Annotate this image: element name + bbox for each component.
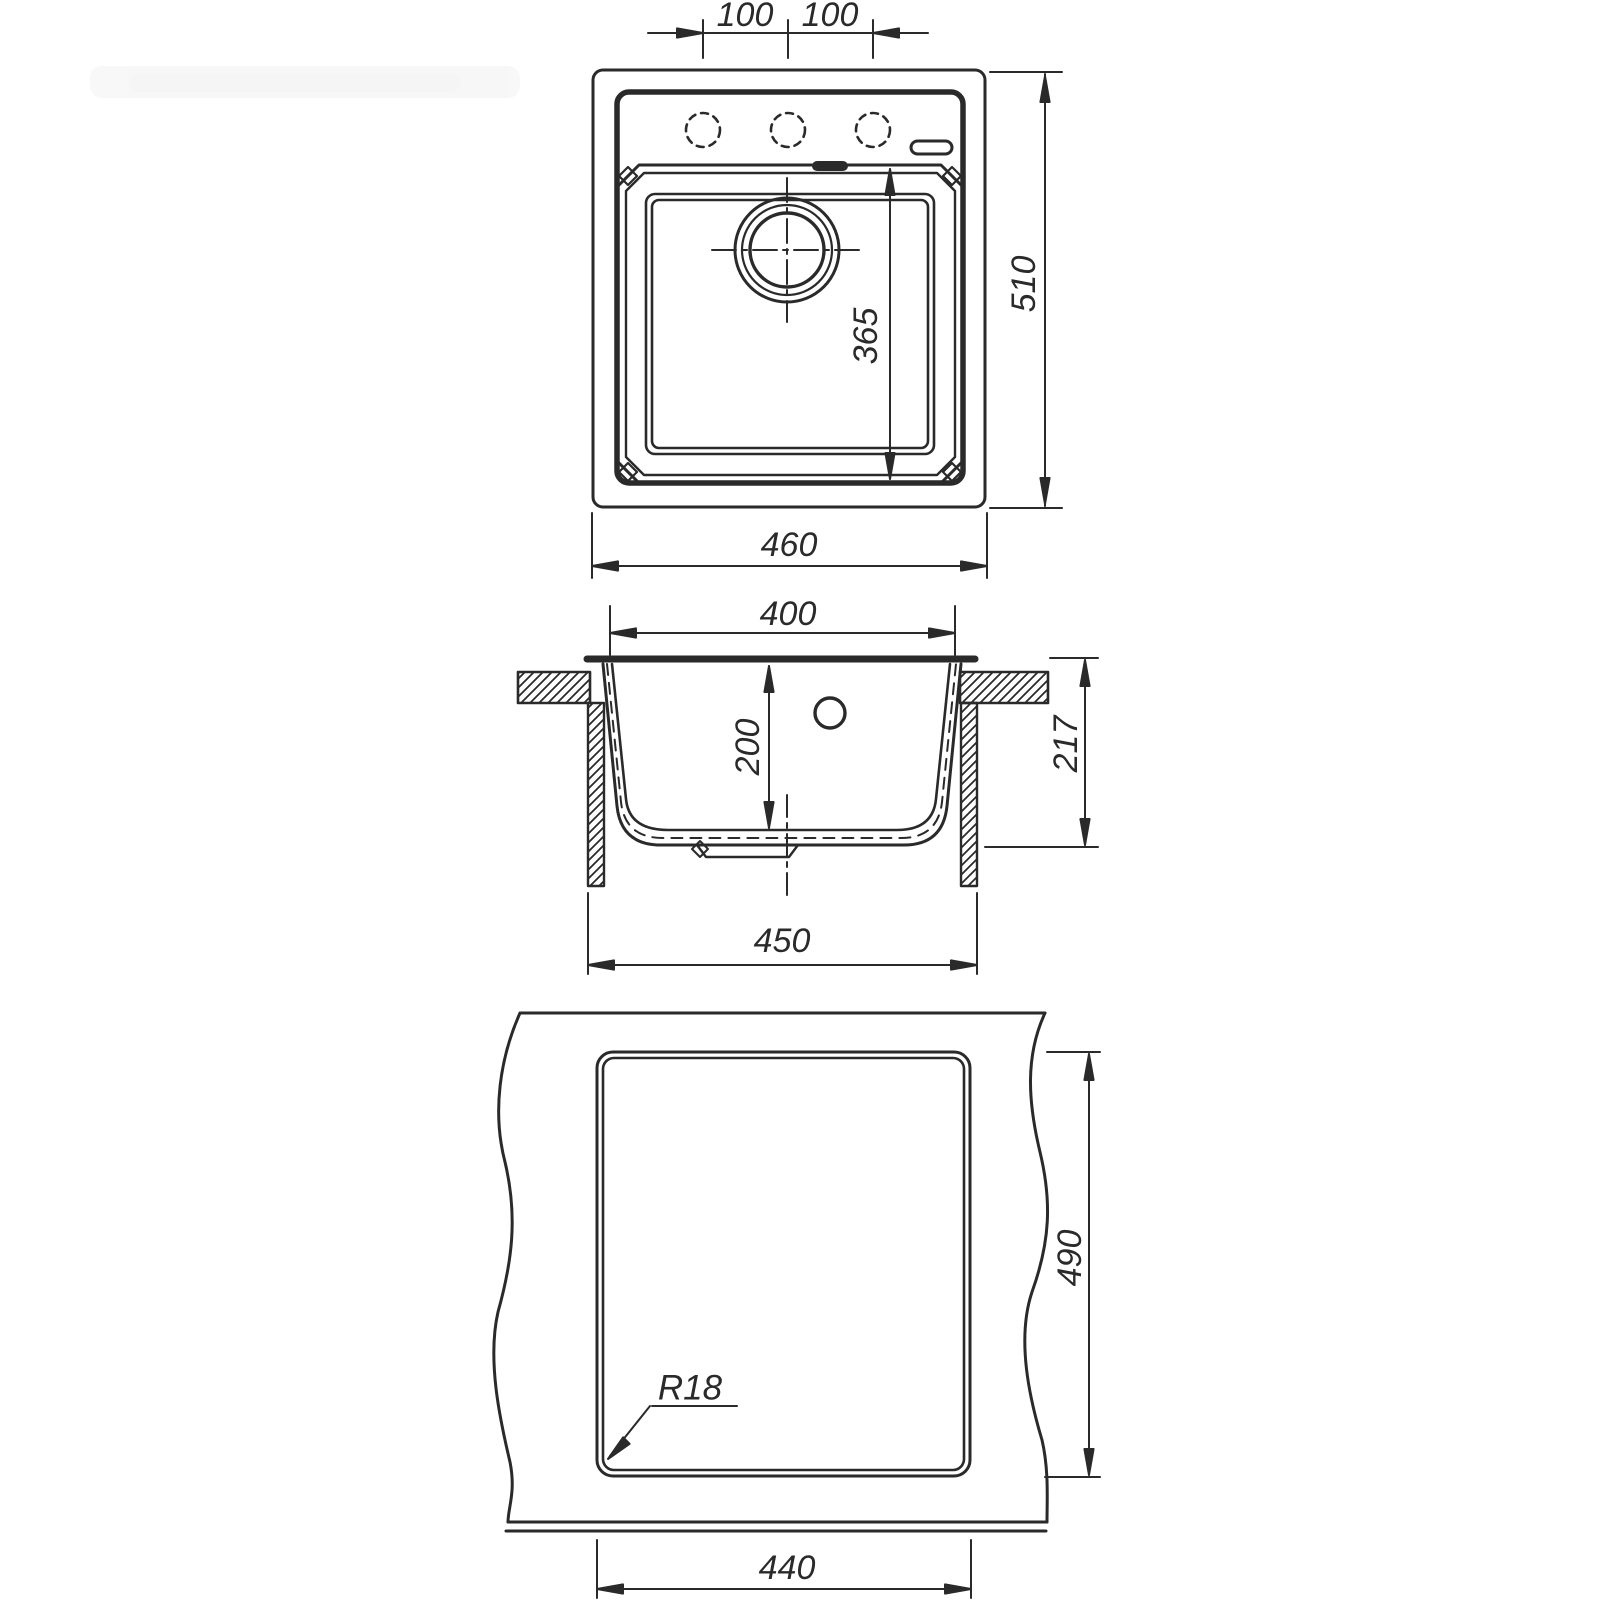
- dimension-365: [885, 169, 894, 479]
- dim-label-100-left: 100: [717, 0, 774, 34]
- dim-label-400: 400: [760, 595, 817, 633]
- dim-label-490: 490: [1051, 1230, 1089, 1287]
- accessory-slot: [911, 141, 952, 154]
- section-view: [518, 606, 1098, 974]
- dim-label-100-right: 100: [802, 0, 859, 34]
- countertop-cutout-view: [494, 1013, 1100, 1598]
- overflow-slot: [812, 161, 848, 171]
- drain-outlet-profile: [697, 845, 798, 857]
- top-view: [592, 20, 1062, 578]
- tap-hole-left: [686, 113, 720, 147]
- countertop-left: [518, 672, 590, 703]
- bowl-wall-inner: [612, 664, 950, 830]
- bowl-wall-hidden: [607, 664, 956, 838]
- dim-label-217: 217: [1047, 715, 1085, 774]
- drawing-page: 100 100 510 365 460: [0, 0, 1600, 1600]
- dim-label-440: 440: [759, 1549, 816, 1587]
- tap-hole-center: [771, 113, 805, 147]
- clamp-bracket-right: [961, 703, 977, 886]
- sink-technical-drawing: 100 100 510 365 460: [0, 0, 1600, 1600]
- bowl-floor-edge-inner: [652, 200, 928, 448]
- radius-leader: [605, 1406, 737, 1462]
- dim-label-460: 460: [761, 526, 818, 564]
- dimension-hole-pitch: [648, 20, 928, 58]
- overflow-hole: [815, 698, 845, 728]
- section-view-labels: 400 200 217 450: [729, 595, 1085, 960]
- panel-left-break-edge: [494, 1013, 520, 1522]
- dim-label-365: 365: [847, 308, 885, 365]
- clamp-bracket-left: [588, 703, 604, 886]
- bowl-wall-outer: [603, 664, 961, 845]
- tap-hole-right: [856, 113, 890, 147]
- watermark-smudge: [90, 66, 520, 98]
- panel-right-break-edge: [1025, 1013, 1048, 1522]
- dim-label-450: 450: [754, 922, 811, 960]
- cutout-outline-inner: [603, 1058, 964, 1470]
- dim-label-510: 510: [1005, 256, 1043, 313]
- cutout-outline-outer: [597, 1052, 970, 1476]
- dim-label-r18: R18: [658, 1369, 723, 1408]
- dim-label-200: 200: [729, 719, 767, 777]
- bowl-rim-offset: [626, 173, 955, 475]
- cutout-view-labels: R18 490 440: [658, 1230, 1089, 1587]
- countertop-right: [960, 672, 1048, 703]
